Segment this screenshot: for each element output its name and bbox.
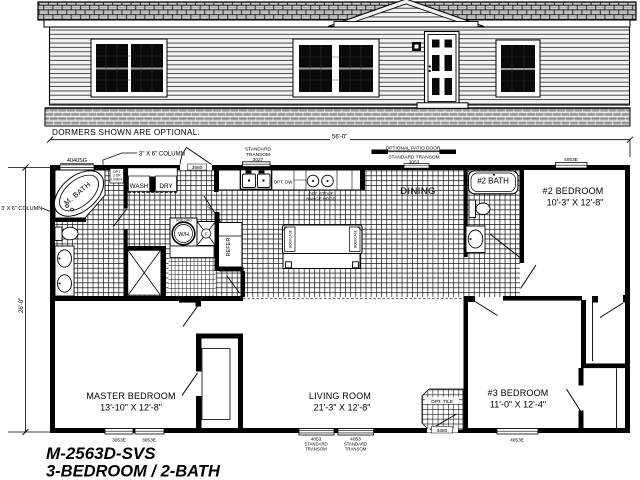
svg-text:#3 BEDROOM: #3 BEDROOM <box>487 388 548 398</box>
svg-text:REFER: REFER <box>226 238 232 257</box>
svg-text:#2 BATH: #2 BATH <box>477 177 509 186</box>
svg-text:DRY: DRY <box>159 183 173 190</box>
svg-text:DORMERS SHOWN ARE OPTIONAL.: DORMERS SHOWN ARE OPTIONAL. <box>52 128 200 137</box>
svg-text:10'-3" X 12'-8": 10'-3" X 12'-8" <box>547 198 604 208</box>
svg-text:W/H: W/H <box>178 232 189 238</box>
svg-text:3068: 3068 <box>239 278 244 288</box>
svg-text:OPT. DW: OPT. DW <box>274 180 294 185</box>
svg-text:11'-0" X 12'-4": 11'-0" X 12'-4" <box>490 400 546 410</box>
svg-text:#2 BEDROOM: #2 BEDROOM <box>542 186 603 196</box>
svg-text:LINEN: LINEN <box>111 177 122 181</box>
svg-text:3-BEDROOM / 2-BATH: 3-BEDROOM / 2-BATH <box>46 463 221 480</box>
svg-text:M-2563D-SVS: M-2563D-SVS <box>46 444 156 463</box>
svg-text:OPT. TILE: OPT. TILE <box>431 399 453 405</box>
svg-text:STANDARD: STANDARD <box>245 147 272 153</box>
svg-text:TRANSOM: TRANSOM <box>246 152 270 158</box>
svg-text:BOOKCASE: BOOKCASE <box>289 230 293 248</box>
svg-text:3053E: 3053E <box>142 438 156 444</box>
svg-text:3' X 6" COLUMN: 3' X 6" COLUMN <box>1 206 42 212</box>
svg-text:RANGE HOOD: RANGE HOOD <box>306 196 335 201</box>
svg-text:3680: 3680 <box>437 428 448 434</box>
svg-text:3027: 3027 <box>253 157 264 163</box>
svg-text:LIVING ROOM: LIVING ROOM <box>309 391 371 401</box>
svg-text:3053E: 3053E <box>112 438 126 444</box>
svg-text:TRANSOM: TRANSOM <box>345 446 367 451</box>
svg-text:MASTER BEDROOM: MASTER BEDROOM <box>86 391 175 401</box>
svg-text:3" X 6" COLUMN: 3" X 6" COLUMN <box>139 152 185 158</box>
svg-text:56'-0": 56'-0" <box>332 135 347 141</box>
svg-text:4053E: 4053E <box>510 438 524 444</box>
svg-text:3680: 3680 <box>192 165 203 171</box>
svg-text:13'-10" X 12'-8": 13'-10" X 12'-8" <box>100 403 162 413</box>
svg-text:26'-0": 26'-0" <box>19 298 25 313</box>
svg-text:21'-3" X 12'-8": 21'-3" X 12'-8" <box>314 403 371 413</box>
svg-text:TRANSOM: TRANSOM <box>305 446 327 451</box>
svg-text:BOOKCASE: BOOKCASE <box>354 230 358 248</box>
svg-text:F: F <box>205 232 208 237</box>
svg-text:WASH: WASH <box>130 183 149 190</box>
svg-text:DINING: DINING <box>400 186 436 197</box>
